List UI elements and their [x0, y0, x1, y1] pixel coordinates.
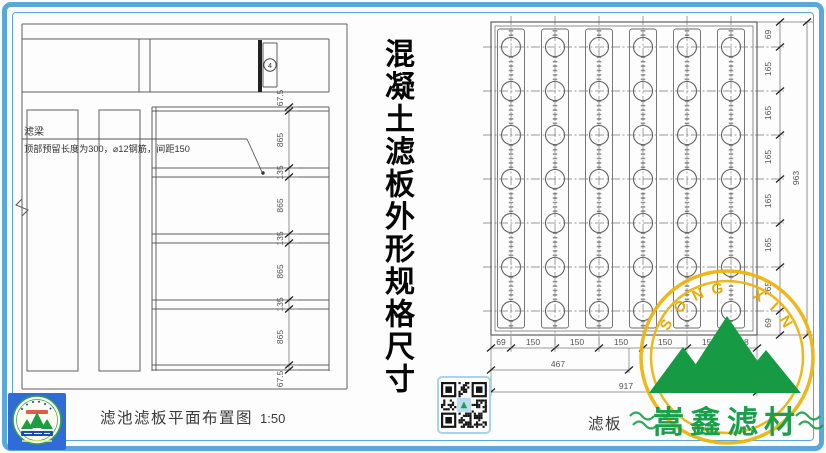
beam-label: 滤梁 — [24, 125, 44, 138]
svg-text:467: 467 — [551, 359, 565, 369]
left-dim-labels: 67.5 865 135 865 135 865 135 865 67.5 — [275, 89, 285, 387]
svg-text:135: 135 — [275, 165, 285, 179]
svg-text:917: 917 — [619, 381, 633, 391]
svg-text:865: 865 — [275, 133, 285, 147]
svg-text:67.5: 67.5 — [275, 370, 285, 387]
svg-text:150: 150 — [614, 337, 628, 347]
svg-text:865: 865 — [275, 330, 285, 344]
plate-hole-grid — [483, 16, 784, 352]
svg-text:150: 150 — [702, 337, 716, 347]
right-bottom-dim-labels: 69 150 150 150 150 150 98 467 917 — [496, 337, 749, 391]
svg-text:865: 865 — [275, 198, 285, 212]
svg-text:150: 150 — [526, 337, 540, 347]
left-drawing-scale: 1:50 — [260, 411, 285, 426]
svg-text:165: 165 — [763, 106, 773, 120]
svg-text:165: 165 — [763, 150, 773, 164]
svg-text:165: 165 — [763, 194, 773, 208]
svg-text:963: 963 — [791, 171, 801, 185]
leader-dot — [261, 171, 264, 174]
right-side-dim-labels: 69 165 165 165 165 165 165 69 963 — [763, 30, 801, 328]
filter-pool-plan-drawing: 4 滤梁 顶部预留长度为300，⌀12钢筋，间距150 67.5 865 135… — [0, 0, 370, 453]
pool-outline — [22, 24, 347, 389]
svg-text:165: 165 — [763, 238, 773, 252]
qr-pattern — [441, 380, 487, 430]
qr-code — [437, 376, 491, 434]
svg-text:150: 150 — [570, 337, 584, 347]
svg-text:165: 165 — [763, 62, 773, 76]
svg-text:150: 150 — [658, 337, 672, 347]
svg-text:135: 135 — [275, 231, 285, 245]
rebar-note: 顶部预留长度为300，⌀12钢筋，间距150 — [24, 143, 190, 154]
svg-text:135: 135 — [275, 297, 285, 311]
drawing-sheet: 4 滤梁 顶部预留长度为300，⌀12钢筋，间距150 67.5 865 135… — [0, 0, 826, 453]
beam-insert-bar — [258, 40, 262, 92]
right-drawing-title: 滤板 — [588, 415, 622, 433]
svg-text:165: 165 — [763, 282, 773, 296]
svg-text:69: 69 — [763, 30, 773, 40]
svg-text:67.5: 67.5 — [275, 89, 285, 106]
section-marker-number: 4 — [268, 61, 272, 70]
svg-text:98: 98 — [739, 337, 749, 347]
svg-text:865: 865 — [275, 264, 285, 278]
company-seal-logo — [8, 393, 66, 450]
left-drawing-title: 滤池滤板平面布置图 — [100, 409, 253, 427]
svg-text:69: 69 — [496, 337, 506, 347]
svg-text:69: 69 — [763, 318, 773, 328]
